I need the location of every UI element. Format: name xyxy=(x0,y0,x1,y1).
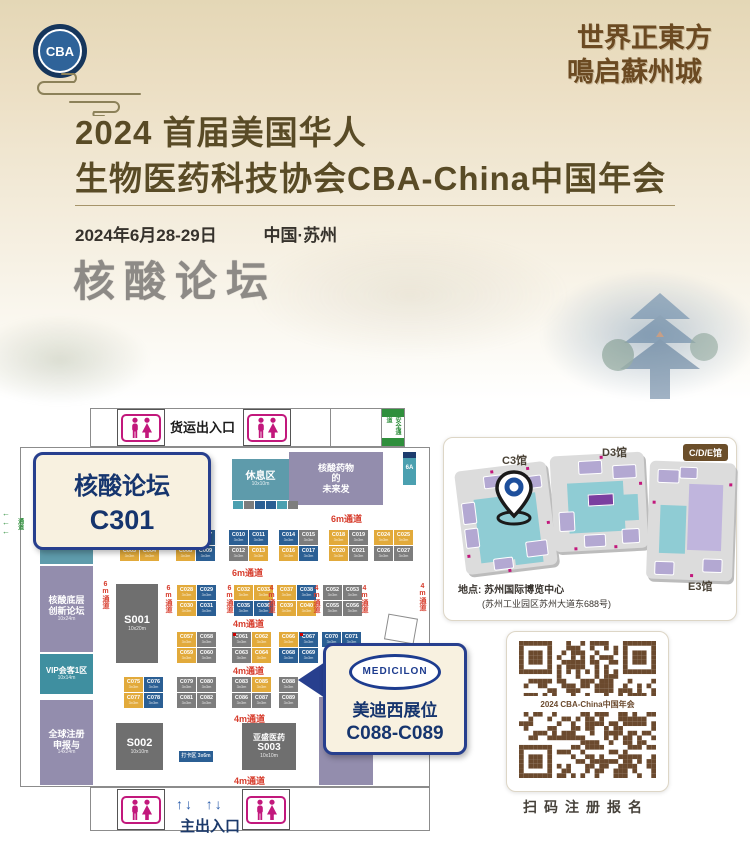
room-s003-yasheng: 亚盛医药S00310x10m xyxy=(242,723,296,770)
aisle-label: 4m通道 xyxy=(417,583,427,611)
aisle-label: 6m通道 xyxy=(224,585,234,613)
hall-room xyxy=(621,528,640,544)
booth-C087: C0873x3m xyxy=(252,693,271,708)
callout-medicilon: MEDICILON 美迪西展位 C088-C089 xyxy=(323,643,467,755)
booth-C013: C0133x3m xyxy=(249,546,268,561)
hall-D3馆 xyxy=(550,452,649,553)
hall-room xyxy=(464,527,480,549)
safety-passage: 安全通道 xyxy=(381,408,405,447)
hall-big-room xyxy=(687,484,723,551)
medicilon-booth-number: C088-C089 xyxy=(346,723,443,745)
strip-booth xyxy=(266,501,276,509)
event-date: 2024年6月28-29日 xyxy=(75,226,217,245)
aisle-label: 6m通道 xyxy=(163,585,173,613)
strip-booth xyxy=(233,501,243,509)
aisle-label: 4m通道 xyxy=(234,712,265,725)
room-s002: S00210x10m xyxy=(116,723,163,770)
booth-C077: C0773x3m xyxy=(124,693,143,708)
hall-entrance-dot xyxy=(574,547,577,550)
booth-C012: C0123x3m xyxy=(229,546,248,561)
hall-entrance-dot xyxy=(653,501,656,504)
aisle-label: 6m通道 xyxy=(331,512,362,525)
booth-C085: C0853x3m xyxy=(252,677,271,692)
booth-C083: C0833x3m xyxy=(232,677,251,692)
restroom-icon xyxy=(247,414,287,442)
strip-booth xyxy=(288,501,298,509)
qr-card: 2024 CBA-China中国年会 xyxy=(506,631,669,792)
booth-C064: C0643x3m xyxy=(252,648,271,663)
pagoda-illustration xyxy=(600,285,720,400)
room-checkin: 打卡区 3x6m xyxy=(179,751,213,762)
location-pin-icon xyxy=(492,470,536,526)
event-location: 中国·苏州 xyxy=(264,226,338,245)
booth-C075: C0753x3m xyxy=(124,677,143,692)
restroom xyxy=(117,789,165,830)
event-title: 2024 首届美国华人 生物医药科技协会CBA-China中国年会 xyxy=(75,110,666,202)
booth-C081: C0813x3m xyxy=(177,693,196,708)
booth-C024: C0243x3m xyxy=(374,530,393,545)
booth-C062: C0623x3m xyxy=(252,632,271,647)
poster-page: CBA 世界正東方 鳴启蘇州城 2024 首届美国华人 生物医药科技协会CBA-… xyxy=(0,0,750,865)
room-rest-area: 休息区10x10m xyxy=(232,459,289,500)
floor-plan: 货运出入口 安全通道 ←←← 通道 ↑↓ ↑↓ 主出入口 核酸论坛 C301 M… xyxy=(10,398,442,840)
strip-booth xyxy=(244,501,254,509)
booth-C057: C0573x3m xyxy=(177,632,196,647)
room-s001: S00110x20m xyxy=(116,584,158,663)
hall-entrance-dot xyxy=(639,482,642,485)
hall-entrance-dot xyxy=(614,545,617,548)
booth-C032: C0323x3m xyxy=(234,585,253,600)
callout-forum-c301: 核酸论坛 C301 xyxy=(33,452,211,550)
medicilon-logo: MEDICILON xyxy=(349,654,441,690)
restroom-icon xyxy=(121,414,161,442)
booth-C026: C0263x3m xyxy=(374,546,393,561)
title-divider xyxy=(75,205,675,206)
booth-C061: C0613x3m xyxy=(232,632,251,647)
freight-entrance-label: 货运出入口 xyxy=(170,417,235,436)
hall-entrance-dot xyxy=(690,574,693,577)
hall-tag: C/D/E馆 xyxy=(683,444,728,461)
side-passage-arrows: ←←← xyxy=(2,510,10,536)
booth-C030: C0303x3m xyxy=(177,601,196,616)
booth-C060: C0603x3m xyxy=(197,648,216,663)
booth-C082: C0823x3m xyxy=(197,693,216,708)
room-global-registration: 全球注册申报与14x24m xyxy=(40,700,93,785)
hall-entrance-dot xyxy=(547,521,550,524)
hall-room xyxy=(578,460,603,475)
booth-C029: C0293x3m xyxy=(197,585,216,600)
hall-room xyxy=(612,464,637,479)
booth-C028: C0283x3m xyxy=(177,585,196,600)
booth-C027: C0273x3m xyxy=(394,546,413,561)
booth-C018: C0183x3m xyxy=(329,530,348,545)
hall-E3馆 xyxy=(646,461,736,582)
booth-C011: C0113x3m xyxy=(249,530,268,545)
booth-C052: C0523x3m xyxy=(323,585,342,600)
qr-center-label: 2024 CBA-China中国年会 xyxy=(515,696,660,712)
booth-C025: C0253x3m xyxy=(394,530,413,545)
hall-room xyxy=(461,502,478,526)
hall-label: C3馆 xyxy=(502,452,527,468)
venue-map-card: C/D/E馆 地点: 苏州国际博览中心 (苏州工业园区苏州大道东688号) C3… xyxy=(443,437,737,621)
booth-C017: C0173x3m xyxy=(299,546,318,561)
hall-entrance-dot xyxy=(467,555,470,558)
booth-C015: C0153x3m xyxy=(299,530,318,545)
strip-booth xyxy=(255,501,265,509)
booth-C063: C0633x3m xyxy=(232,648,251,663)
aisle-label: 4m通道 xyxy=(233,664,264,677)
restroom-icon xyxy=(246,796,286,824)
strip-booth xyxy=(277,501,287,509)
aisle-label: 6m通道 xyxy=(100,581,110,609)
hall-label: E3馆 xyxy=(688,578,712,594)
hall-room xyxy=(525,539,549,558)
booth-C016: C0163x3m xyxy=(279,546,298,561)
aisle-label: 4m通道 xyxy=(359,585,369,613)
booth-C078: C0783x3m xyxy=(144,693,163,708)
hall-room xyxy=(654,561,674,576)
hall-room xyxy=(702,558,722,573)
booth-C021: C0213x3m xyxy=(349,546,368,561)
qr-caption: 扫码注册报名 xyxy=(523,797,649,817)
booth-C089: C0893x3m xyxy=(279,693,298,708)
venue-address: 地点: 苏州国际博览中心 (苏州工业园区苏州大道东688号) xyxy=(458,584,611,611)
callout-forum-booth: C301 xyxy=(90,505,155,536)
hall-room xyxy=(584,534,607,548)
aisle-label: 6m通道 xyxy=(232,566,263,579)
event-date-row: 2024年6月28-29日 中国·苏州 xyxy=(75,221,337,246)
room-vip-meeting1: VIP会客1区10x14m xyxy=(40,654,93,694)
hall-room xyxy=(657,469,679,484)
entrance-arrows: ↑↓ ↑↓ xyxy=(176,796,224,812)
booth-C037: C0373x3m xyxy=(277,585,296,600)
hall-room xyxy=(558,511,575,532)
booth-C086: C0863x3m xyxy=(232,693,251,708)
restroom xyxy=(117,409,165,446)
booth-C031: C0313x3m xyxy=(197,601,216,616)
aisle-label: 4m通道 xyxy=(233,617,264,630)
booth-C039: C0393x3m xyxy=(277,601,296,616)
main-entrance-label: 主出入口 xyxy=(180,815,240,836)
room-nucleic-forum: 核酸底层创新论坛10x24m xyxy=(40,566,93,652)
booth-C088: C0883x3m xyxy=(279,677,298,692)
booth-C014: C0143x3m xyxy=(279,530,298,545)
restroom-icon xyxy=(121,796,161,824)
hall-label: D3馆 xyxy=(602,444,627,460)
booth-C019: C0193x3m xyxy=(349,530,368,545)
booth-C010: C0103x3m xyxy=(229,530,248,545)
booth-C068: C0683x3m xyxy=(279,648,298,663)
forum-title: 核酸论坛 xyxy=(73,248,277,309)
restroom xyxy=(242,789,290,830)
cba-logo: CBA xyxy=(33,24,87,78)
booth-C035: C0353x3m xyxy=(234,601,253,616)
booth-C020: C0203x3m xyxy=(329,546,348,561)
aisle-label: 4m通道 xyxy=(234,774,265,787)
callout-forum-name: 核酸论坛 xyxy=(74,466,170,501)
cba-logo-text: CBA xyxy=(38,29,82,73)
hall-room xyxy=(679,467,697,480)
medicilon-booth-name: 美迪西展位 xyxy=(353,696,438,721)
booth-C055: C0553x3m xyxy=(323,601,342,616)
corridor-divider xyxy=(330,408,331,447)
hall-entrance-dot xyxy=(729,483,732,486)
booth-C067: C0673x3m xyxy=(299,632,318,647)
calligraphy-slogan: 世界正東方 鳴启蘇州城 xyxy=(567,22,712,90)
side-passage-label: 通道 xyxy=(16,518,23,530)
aisle-label: 4m通道 xyxy=(311,585,321,613)
booth-C080: C0803x3m xyxy=(197,677,216,692)
booth-C079: C0793x3m xyxy=(177,677,196,692)
restroom xyxy=(243,409,291,446)
booth-C066: C0663x3m xyxy=(279,632,298,647)
ramp-structure xyxy=(384,614,418,645)
aisle-label: 4m通道 xyxy=(266,585,276,613)
hall-entrance-dot xyxy=(508,569,511,572)
booth-C059: C0593x3m xyxy=(177,648,196,663)
booth-C058: C0583x3m xyxy=(197,632,216,647)
hall-highlight-booth xyxy=(588,493,615,506)
room-nucleic-future: 核酸药物的未来发 xyxy=(289,452,383,505)
hall-floor xyxy=(659,505,687,554)
room-6a: 6A xyxy=(403,452,416,485)
booth-C076: C0763x3m xyxy=(144,677,163,692)
